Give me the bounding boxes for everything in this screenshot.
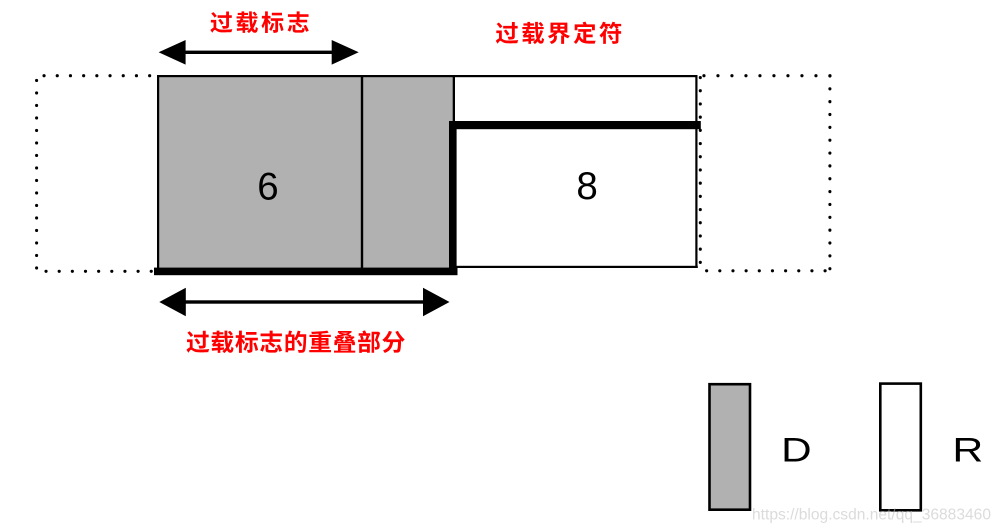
svg-text:https://blog.csdn.net/qq_36883: https://blog.csdn.net/qq_36883460: [752, 507, 991, 524]
svg-text:8: 8: [576, 165, 597, 208]
svg-text:D: D: [781, 432, 812, 470]
svg-text:6: 6: [257, 165, 278, 208]
svg-text:R: R: [952, 432, 983, 470]
